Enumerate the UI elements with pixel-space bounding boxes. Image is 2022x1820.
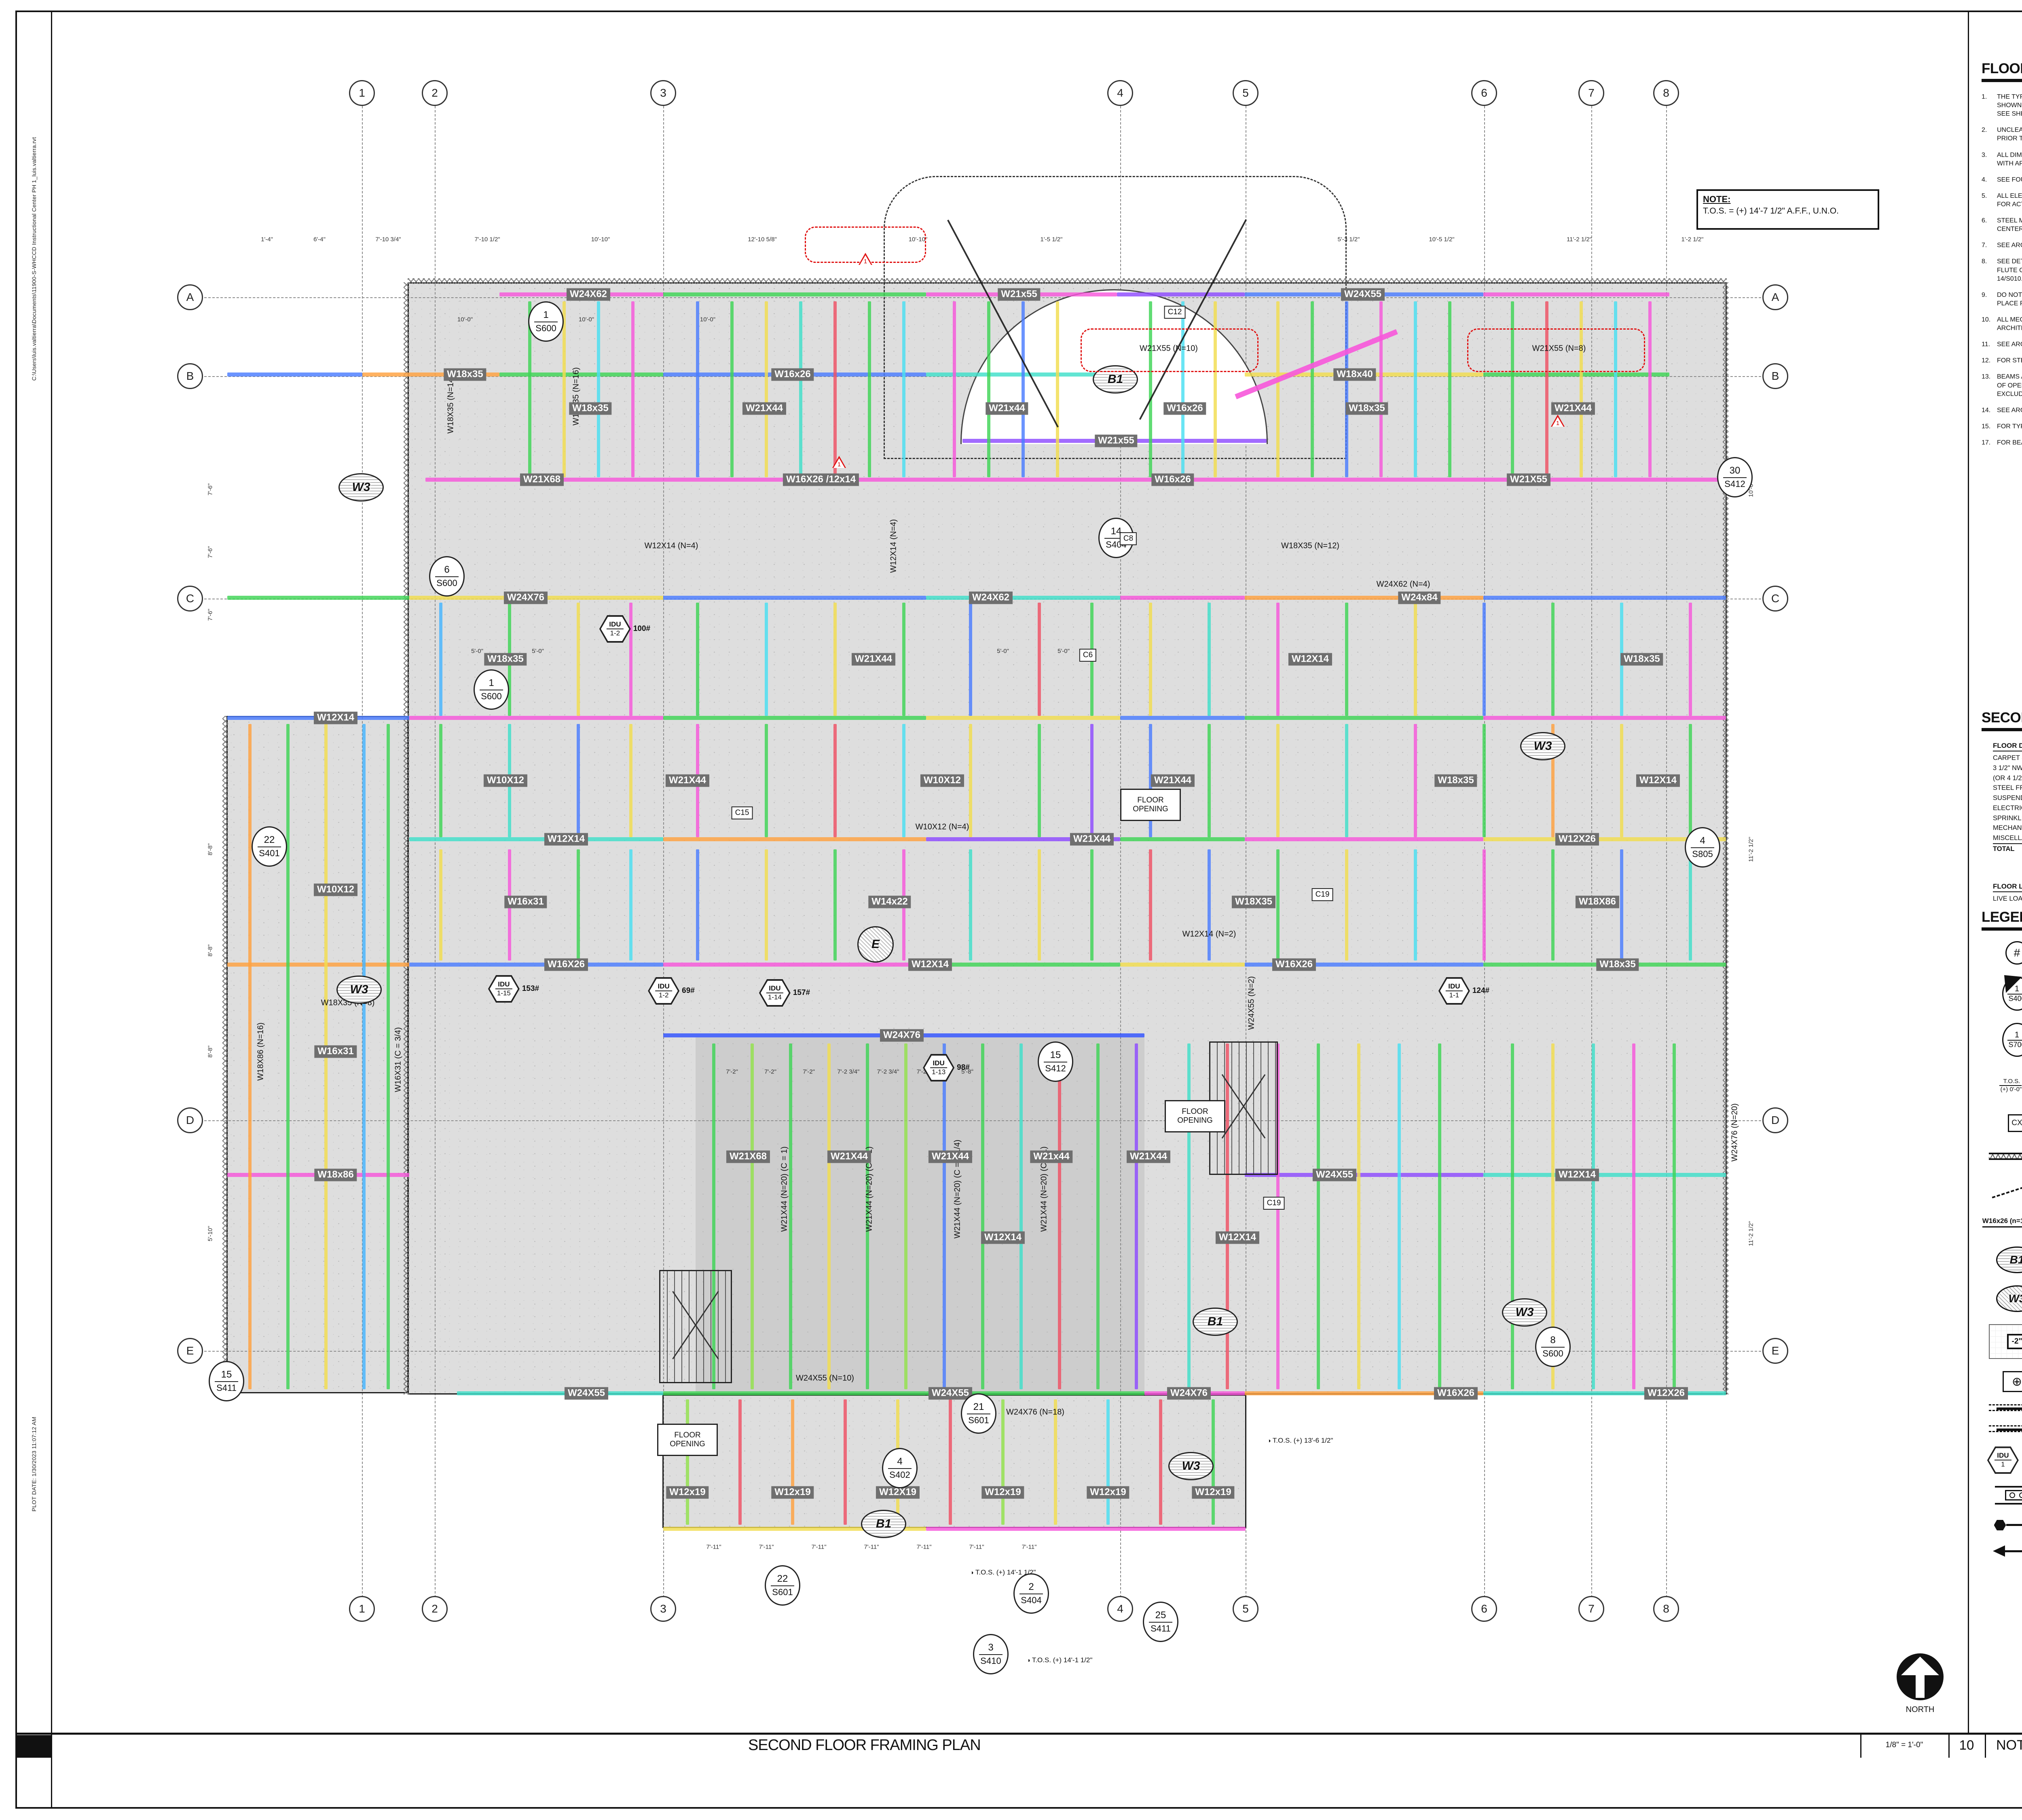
joist	[789, 1043, 792, 1389]
note-number: 3.	[1982, 151, 1997, 168]
detail-sheet: S601	[968, 1414, 989, 1426]
detail-sheet: S402	[889, 1469, 910, 1480]
grid-bubble: 1	[349, 80, 375, 106]
joist	[765, 301, 768, 477]
beam-label: W18x35	[1620, 653, 1663, 666]
idu-weight: 157#	[793, 988, 810, 997]
north-arrow-head	[1901, 1657, 1939, 1675]
legend-symbol-cell: IDU1XXXX#	[1982, 1446, 2022, 1474]
load-row: SPRINKLERS2.0 PSF	[1993, 813, 2022, 823]
beam-label: W10X12	[920, 775, 964, 787]
beam-annotation: W18X86 (N=16)	[256, 1022, 266, 1081]
detail-sheet: S401	[259, 847, 279, 859]
idu-weight: 124#	[1472, 986, 1489, 995]
joist	[833, 301, 837, 477]
beam-label: W24X55	[929, 1387, 972, 1400]
floor-opening-label: FLOOR OPENING	[1120, 789, 1181, 821]
beam-label: W16X26 /12x14	[783, 474, 859, 486]
joist	[1438, 1043, 1441, 1389]
bottombar-scale: 1/8" = 1'-0"	[1860, 1733, 1948, 1758]
girder	[227, 596, 409, 600]
note-text: FOR TYPICAL ROOF DRAIN SUPPORT SEE DETAI…	[1997, 422, 2022, 431]
joist	[629, 724, 632, 837]
wallbelow-icon	[1989, 1404, 2022, 1413]
elevation-mark: T.O.S. (+) 14'-1 1/2"	[1027, 1656, 1093, 1664]
column-tag: C6	[1079, 649, 1096, 662]
legend-row: T.O.S.(+) 0'-0"ELEVATION MARK T.O.W. = T…	[1982, 1069, 2022, 1102]
joist	[1214, 301, 1217, 477]
notes-list: 1.THE TYPICAL DETAILS SHOWN ON THE S0XX …	[1982, 93, 2022, 447]
joist	[943, 1043, 946, 1389]
joist	[1511, 301, 1514, 477]
idu-number: 1-13	[930, 1067, 947, 1076]
joist	[833, 724, 837, 837]
stud-wall-icon	[1989, 1153, 2022, 1160]
joist	[738, 1399, 742, 1525]
joist	[1689, 603, 1692, 716]
beam-label: W24x84	[1398, 592, 1440, 604]
joist	[577, 849, 580, 961]
framing-note: 6.STEEL MEMBERS ARE EQUALLY SPACED BETWE…	[1982, 216, 2022, 233]
grid-bubble: 3	[650, 80, 676, 106]
bottombar-plan-title: SECOND FLOOR FRAMING PLAN	[748, 1733, 1112, 1758]
beam-label: W16X26	[544, 959, 588, 971]
beam-label: W12X26	[1555, 833, 1599, 846]
legend-symbol-cell	[1982, 1189, 2022, 1190]
joist	[1317, 1043, 1320, 1389]
legend-row: INDICATES CONNECTION TO BE MADE WITH AST…	[1982, 1517, 2022, 1533]
beam-annotation: W24X76 (N=18)	[1006, 1408, 1064, 1417]
beam-label: W12X14	[1288, 653, 1332, 666]
girder	[1245, 1173, 1483, 1177]
dimension-text: 7'-10 1/2"	[474, 236, 500, 243]
detail-sheet: S411	[216, 1382, 237, 1393]
detail-sheet: S410	[980, 1655, 1001, 1666]
beam-label: W12x19	[981, 1486, 1024, 1499]
girder	[926, 716, 1120, 720]
deck-type-tag: B1	[861, 1510, 906, 1538]
note-number: 1.	[1982, 93, 1997, 118]
legend-symbol-cell	[1982, 1404, 2022, 1413]
corner-fill	[17, 1735, 51, 1758]
idu-weight: 69#	[682, 986, 695, 995]
detail-bubble: 3S410	[973, 1634, 1009, 1674]
joist	[1311, 301, 1314, 477]
beam-label: W12X14	[544, 833, 588, 846]
legend-row: B1STEEL DECK. FOR ADDITIONAL INFORMATION…	[1982, 1246, 2022, 1273]
dimension-text: 11'-2 1/2"	[1567, 236, 1592, 243]
framing-note: 8.SEE DETAILS FOR TYPICAL DECK TO BEAM C…	[1982, 257, 2022, 283]
note-text: SEE ARCHITECTURAL DRAWINGS FOR WALL STUD…	[1997, 241, 2022, 250]
detail-number: 22	[771, 1573, 794, 1586]
note-text: ALL ELEVATIONS ARE ESTABLISHED FROM AND …	[1997, 192, 2022, 209]
grid-bubble: 6	[1471, 80, 1497, 106]
legend-row: IDU1XXXX#INDICATES SUSPENDED MECHANICAL …	[1982, 1446, 2022, 1474]
idu-hexagon-inner: IDU1-13	[924, 1056, 953, 1080]
joist	[844, 1399, 847, 1525]
legend-row: #GRID BUBBLE AND NUMBER. SEE ARCHITECTUR…	[1982, 941, 2022, 965]
a490-bolt-icon	[1994, 1520, 2022, 1530]
joist	[969, 849, 972, 961]
column-tag: C12	[1164, 306, 1186, 319]
legend-symbol-cell: B1	[1982, 1246, 2022, 1273]
joist	[439, 849, 442, 961]
dimension-text: 1'-5 1/2"	[1041, 236, 1063, 243]
joist	[696, 301, 699, 477]
framing-note: 7.SEE ARCHITECTURAL DRAWINGS FOR WALL ST…	[1982, 241, 2022, 250]
notes-title: FLOOR FRAMING NOTES	[1982, 61, 2022, 82]
detail-number: 21	[967, 1401, 990, 1414]
margin-divider	[51, 11, 52, 1809]
beam-label: W24X55	[1313, 1169, 1356, 1181]
exterior-wall-hatch	[222, 716, 228, 1393]
girder	[926, 596, 1120, 600]
legend-row: CXCOLUMN TAG. SEE COLUMN SCHEDULE ON FOU…	[1982, 1114, 2022, 1132]
joist	[387, 724, 390, 1389]
detail-number: 22	[258, 834, 281, 847]
joist	[1038, 724, 1041, 837]
idu-hexagon-icon: IDU1-2	[599, 615, 631, 643]
framing-note: 1.THE TYPICAL DETAILS SHOWN ON THE S0XX …	[1982, 93, 2022, 118]
grid-bubble: 7	[1578, 80, 1604, 106]
joist	[563, 301, 566, 477]
beam-label: W21X44	[742, 402, 786, 415]
legend-row: INDICATES ROOF DRAIN, SEE ARCHITECTURAL …	[1982, 1486, 2022, 1505]
load-item: (OR 4 1/2" NW CONCRETE o/ EPIC METAL DEC…	[1993, 773, 2022, 783]
beam-label: W24X62	[969, 592, 1013, 604]
note-title: NOTE:	[1703, 194, 1873, 205]
idu-tag: IDU1-1124#	[1438, 977, 1489, 1005]
grid-bubble: 7	[1578, 1596, 1604, 1622]
legend-symbol-cell: W16x26 (n=12) (c=1")	[1982, 1217, 2022, 1227]
note-text: BEAMS AT FLOOR OPENINGS SHALL BE PLACED …	[1997, 372, 2022, 398]
framing-note: 3.ALL DIMENSIONS ARE TO FACE OF WALL STU…	[1982, 151, 2022, 168]
legend-row: INDICATES BRACE FRAME LOCATION. FOR ADDI…	[1982, 1181, 2022, 1198]
beam-label: W12X26	[1644, 1387, 1688, 1400]
girder	[1120, 963, 1245, 967]
beam-label: W24X76	[504, 592, 548, 604]
beam-label: W21X44	[827, 1151, 871, 1163]
exterior-wall-hatch	[408, 278, 1727, 284]
note-text: STEEL MEMBERS ARE EQUALLY SPACED BETWEEN…	[1997, 216, 2022, 233]
beam-label: W18x86	[314, 1169, 357, 1181]
legend-row: INDICATES MOMENT CONNECTION SEE DETAIL 1…	[1982, 1545, 2022, 1557]
column-tag: C19	[1312, 888, 1333, 901]
grid-bubble: 1	[349, 1596, 375, 1622]
idu-hexagon-icon: IDU1-2	[648, 977, 679, 1005]
beam-label: W18X35	[1232, 896, 1275, 908]
beam-label: W16x26	[1163, 402, 1206, 415]
joist	[1483, 849, 1486, 961]
note-number: 8.	[1982, 257, 1997, 283]
idu-tag-icon: IDU1XXXX#	[1987, 1446, 2022, 1474]
beam-label: W12x19	[1087, 1486, 1129, 1499]
joist	[833, 603, 837, 716]
detail-bubble: 1S600	[528, 301, 564, 342]
joist	[439, 603, 442, 716]
beam-label: W18x35	[1434, 775, 1477, 787]
beam-label: W21X68	[520, 474, 564, 486]
girder	[1483, 716, 1726, 720]
joist	[765, 724, 768, 837]
beam-annotation: W12X14 (N=2)	[1182, 930, 1236, 939]
load-row: STEEL FRAMING8.0 PSF	[1993, 783, 2022, 793]
revision-cloud	[1467, 328, 1645, 372]
joist	[1673, 1043, 1676, 1389]
joist	[1357, 1043, 1360, 1389]
note-number: 6.	[1982, 216, 1997, 233]
joist	[1149, 603, 1152, 716]
joist	[1620, 724, 1623, 837]
joist	[1551, 603, 1555, 716]
joist	[902, 301, 905, 477]
detail-number: 4	[1691, 835, 1714, 848]
beam-label: W21X68	[726, 1151, 770, 1163]
detail-bubble: 4S402	[882, 1448, 918, 1488]
note-number: 11.	[1982, 340, 1997, 349]
girder	[663, 1391, 926, 1395]
grid-bubble: A	[1762, 284, 1788, 310]
girder	[227, 372, 362, 377]
joist	[686, 1399, 689, 1525]
note-value: T.O.S. = (+) 14'-7 1/2" A.F.F., U.N.O.	[1703, 206, 1873, 216]
joist	[904, 1043, 907, 1389]
dimension-text: 10'-0"	[579, 316, 594, 323]
note-number: 13.	[1982, 372, 1997, 398]
joist	[981, 1043, 984, 1389]
joist	[577, 603, 580, 716]
note-text: FOR STEEL BEAM-TO-BEAM AND BEAM-TO-COLUM…	[1997, 356, 2022, 365]
north-arrow-icon	[1897, 1653, 1944, 1700]
girder	[1483, 596, 1726, 600]
girder	[457, 1391, 663, 1395]
framing-note: 17.FOR BEAM TO HSS COL. CONNECTION SEE D…	[1982, 438, 2022, 447]
bottombar-plan-number: 10	[1948, 1733, 1985, 1758]
idu-label: IDU	[933, 1059, 945, 1067]
deck-type-tag: W3	[338, 473, 384, 502]
slab-depression-icon: -2"	[1989, 1324, 2022, 1359]
load-item: ELECTRICAL	[1993, 803, 2022, 813]
elevation-mark-icon: T.O.S.(+) 0'-0"	[1999, 1078, 2022, 1093]
girder	[409, 963, 663, 967]
idu-weight: 100#	[633, 624, 650, 633]
legend-row: INDICATES METAL STUD WALLS ABOVE FLOOR F…	[1982, 1144, 2022, 1169]
load-row: ELECTRICAL0.5 PSF	[1993, 803, 2022, 813]
beam-label: W24X76	[1167, 1387, 1211, 1400]
joist	[1135, 1043, 1138, 1389]
headerbelow-icon	[1989, 1425, 2022, 1434]
dimension-text: 7'-10 3/4"	[375, 236, 401, 243]
joist	[1648, 301, 1652, 477]
load-row: (OR 4 1/2" NW CONCRETE o/ EPIC METAL DEC…	[1993, 773, 2022, 783]
joist	[1106, 1399, 1110, 1525]
beam-label: W24X55	[565, 1387, 608, 1400]
dimension-text: 7'-2"	[803, 1069, 815, 1075]
beam-label: W18x40	[1333, 368, 1376, 381]
grid-bubble: 5	[1233, 80, 1258, 106]
floor-opening-label: FLOOR OPENING	[1165, 1100, 1225, 1132]
note-number: 7.	[1982, 241, 1997, 250]
beam-label: W12X14	[908, 959, 952, 971]
dimension-text: 8'-8"	[207, 843, 214, 855]
joist	[1096, 1043, 1100, 1389]
deck-type-tag: B1	[1193, 1308, 1238, 1336]
beam-label: W21X44	[1127, 1151, 1170, 1163]
section-mark-icon: 1S400	[2002, 977, 2022, 1011]
joist	[827, 1043, 831, 1389]
grid-bubble: B	[1762, 363, 1788, 389]
brace-frame-icon	[1992, 1181, 2022, 1198]
idu-hexagon-icon: IDU1-1	[1438, 977, 1470, 1005]
detail-sheet: S600	[436, 577, 457, 588]
moment-connection-icon	[1993, 1545, 2022, 1557]
load-item: SPRINKLERS	[1993, 813, 2022, 823]
detail-bubble: 21S601	[961, 1393, 996, 1434]
joist	[1058, 1043, 1061, 1389]
note-number: 10.	[1982, 315, 1997, 332]
detail-sheet: S411	[1151, 1623, 1171, 1634]
dimension-text: 12'-10 5/8"	[748, 236, 777, 243]
legend-title: LEGEND	[1982, 909, 2022, 931]
dimension-text: 8'-8"	[207, 944, 214, 957]
idu-weight: 153#	[522, 984, 539, 993]
dimension-text: 5'-3 1/2"	[1338, 236, 1360, 243]
plot-date-text: PLOT DATE: 1/30/2023 11:07:12 AM	[31, 1417, 37, 1511]
note-number: 17.	[1982, 438, 1997, 447]
girder	[663, 716, 926, 720]
beam-label: W24X62	[567, 288, 610, 301]
column-tag: C15	[732, 806, 753, 819]
dimension-text: 5'-0"	[1058, 648, 1070, 655]
framing-note: 5.ALL ELEVATIONS ARE ESTABLISHED FROM AN…	[1982, 192, 2022, 209]
dimension-text: 7'-11"	[969, 1544, 984, 1551]
framing-note: 15.FOR TYPICAL ROOF DRAIN SUPPORT SEE DE…	[1982, 422, 2022, 431]
idu-hexagon-icon: IDU1-15	[488, 975, 520, 1003]
joist	[696, 849, 699, 961]
detail-sheet: S412	[1045, 1062, 1066, 1074]
legend-symbol-cell: 1S700	[1982, 1023, 2022, 1057]
live-load-label: LIVE LOAD	[1993, 894, 2022, 904]
grid-bubble: A	[177, 284, 203, 310]
legend-row: INDICATES WALL BELOW FLOOR FRAMING	[1982, 1404, 2022, 1413]
dimension-text: 6'-4"	[313, 236, 326, 243]
legend-symbol-cell: W3	[1982, 1285, 2022, 1312]
dimension-text: 7'-11"	[1022, 1544, 1036, 1551]
idu-hexagon-inner: IDU1-14	[761, 981, 789, 1005]
joist	[1038, 849, 1041, 961]
beam-label: W12x19	[1192, 1486, 1234, 1499]
legend-row: ⊕INDICATES FLOOR BOX. SEE ELECTRICAL DRA…	[1982, 1371, 2022, 1392]
detail-number: 6	[435, 564, 458, 577]
idu-label: IDU	[609, 620, 621, 629]
frame-beam-id-icon: W16x26 (n=12) (c=1")	[1982, 1217, 2022, 1227]
joist	[597, 301, 600, 477]
beam-label: W10X12	[484, 775, 527, 787]
idu-hexagon-inner: IDU1-15	[490, 977, 518, 1001]
girder	[409, 837, 663, 841]
beam-label: W16x31	[504, 896, 547, 908]
girder	[1483, 292, 1669, 296]
joist	[969, 603, 972, 716]
joist	[1090, 849, 1093, 961]
beam-label: W12X14	[314, 712, 357, 724]
detail-sheet: S600	[481, 690, 501, 702]
joist	[799, 301, 802, 477]
beam-label: W12X14	[1636, 775, 1680, 787]
legend-row: -2"INDICATES AREA AND DEPTH OF SLAB DEPR…	[1982, 1324, 2022, 1359]
beam-annotation: W10X12 (N=4)	[916, 823, 969, 832]
joist	[1054, 1399, 1057, 1525]
drawing-sheet: 1122334455667788AABBCCDDEEFLOOR OPENINGF…	[0, 0, 2022, 1820]
load-row: MISCELLANEOUS1.0 PSF	[1993, 833, 2022, 843]
detail-mark-icon: 1S700	[2002, 1023, 2022, 1057]
dimension-text: 7'-6"	[207, 609, 214, 621]
detail-sheet: S805	[1692, 848, 1713, 859]
joist	[1483, 603, 1486, 716]
legend-symbol-cell	[1982, 1425, 2022, 1434]
legend-symbol-cell	[1982, 1545, 2022, 1557]
loads-title: SECOND FLOOR DESIGN LOADS	[1982, 710, 2022, 731]
idu-number: 1-15	[495, 988, 512, 997]
load-row: 3 1/2" NW CONCRETE o/ VERCO METAL DECK62…	[1993, 763, 2022, 773]
legend-row: W3STEEL DECK w/ CONCRETE TOPPING. STEEL …	[1982, 1285, 2022, 1312]
joist	[362, 724, 366, 1389]
grid-bubble: 4	[1107, 80, 1133, 106]
joist	[1345, 301, 1348, 477]
joist	[1208, 849, 1211, 961]
load-item: MECHANICAL DUCT WORK	[1993, 823, 2022, 833]
detail-bubble: 4S805	[1685, 827, 1720, 868]
detail-number: 4	[888, 1456, 911, 1469]
stair-opening	[659, 1270, 732, 1383]
girder	[1483, 1391, 1726, 1395]
joist	[765, 603, 768, 716]
joist	[1019, 1043, 1023, 1389]
framing-note: 9.DO NOT SUSPEND PIPING, LIGHT FIXTURES,…	[1982, 291, 2022, 308]
revision-cloud	[1081, 328, 1258, 372]
joist	[1001, 1399, 1005, 1525]
idu-number: 1-14	[766, 993, 783, 1001]
idu-weight: 98#	[957, 1063, 970, 1072]
dimension-text: 5'-10"	[207, 1226, 214, 1241]
legend-panel: LEGEND #GRID BUBBLE AND NUMBER. SEE ARCH…	[1982, 909, 2022, 1569]
grid-bubble: D	[177, 1107, 203, 1133]
legend-row: INDICATES HEADER BELOW, SEE DETAIL 4/S01…	[1982, 1425, 2022, 1434]
beam-label: W21x55	[1095, 435, 1137, 447]
beam-label: W24X55	[1341, 288, 1385, 301]
joist	[1208, 724, 1211, 837]
detail-bubble: 25S411	[1143, 1602, 1178, 1642]
load-item: CARPET & PAD FLOORING	[1993, 753, 2022, 763]
joist	[1689, 724, 1692, 837]
note-number: 15.	[1982, 422, 1997, 431]
grid-bubble: 3	[650, 1596, 676, 1622]
detail-number: 15	[215, 1369, 238, 1382]
joist	[1632, 1043, 1635, 1389]
note-text: THE TYPICAL DETAILS SHOWN ON THE S0XX SE…	[1997, 93, 2022, 118]
beam-label: W16x26	[771, 368, 814, 381]
joist	[833, 849, 837, 961]
beam-annotation: W12X14 (N=4)	[889, 519, 899, 573]
joist	[248, 724, 252, 1389]
note-text: ALL MECHANICAL UNITS SHALL BE VERIFIED W…	[1997, 315, 2022, 332]
grid-bubble: E	[1762, 1338, 1788, 1364]
idu-hexagon-inner: IDU1-2	[601, 617, 629, 641]
framing-note: 10.ALL MECHANICAL UNITS SHALL BE VERIFIE…	[1982, 315, 2022, 332]
joist	[1149, 849, 1152, 961]
beam-label: W16x26	[1151, 474, 1194, 486]
note-number: 9.	[1982, 291, 1997, 308]
